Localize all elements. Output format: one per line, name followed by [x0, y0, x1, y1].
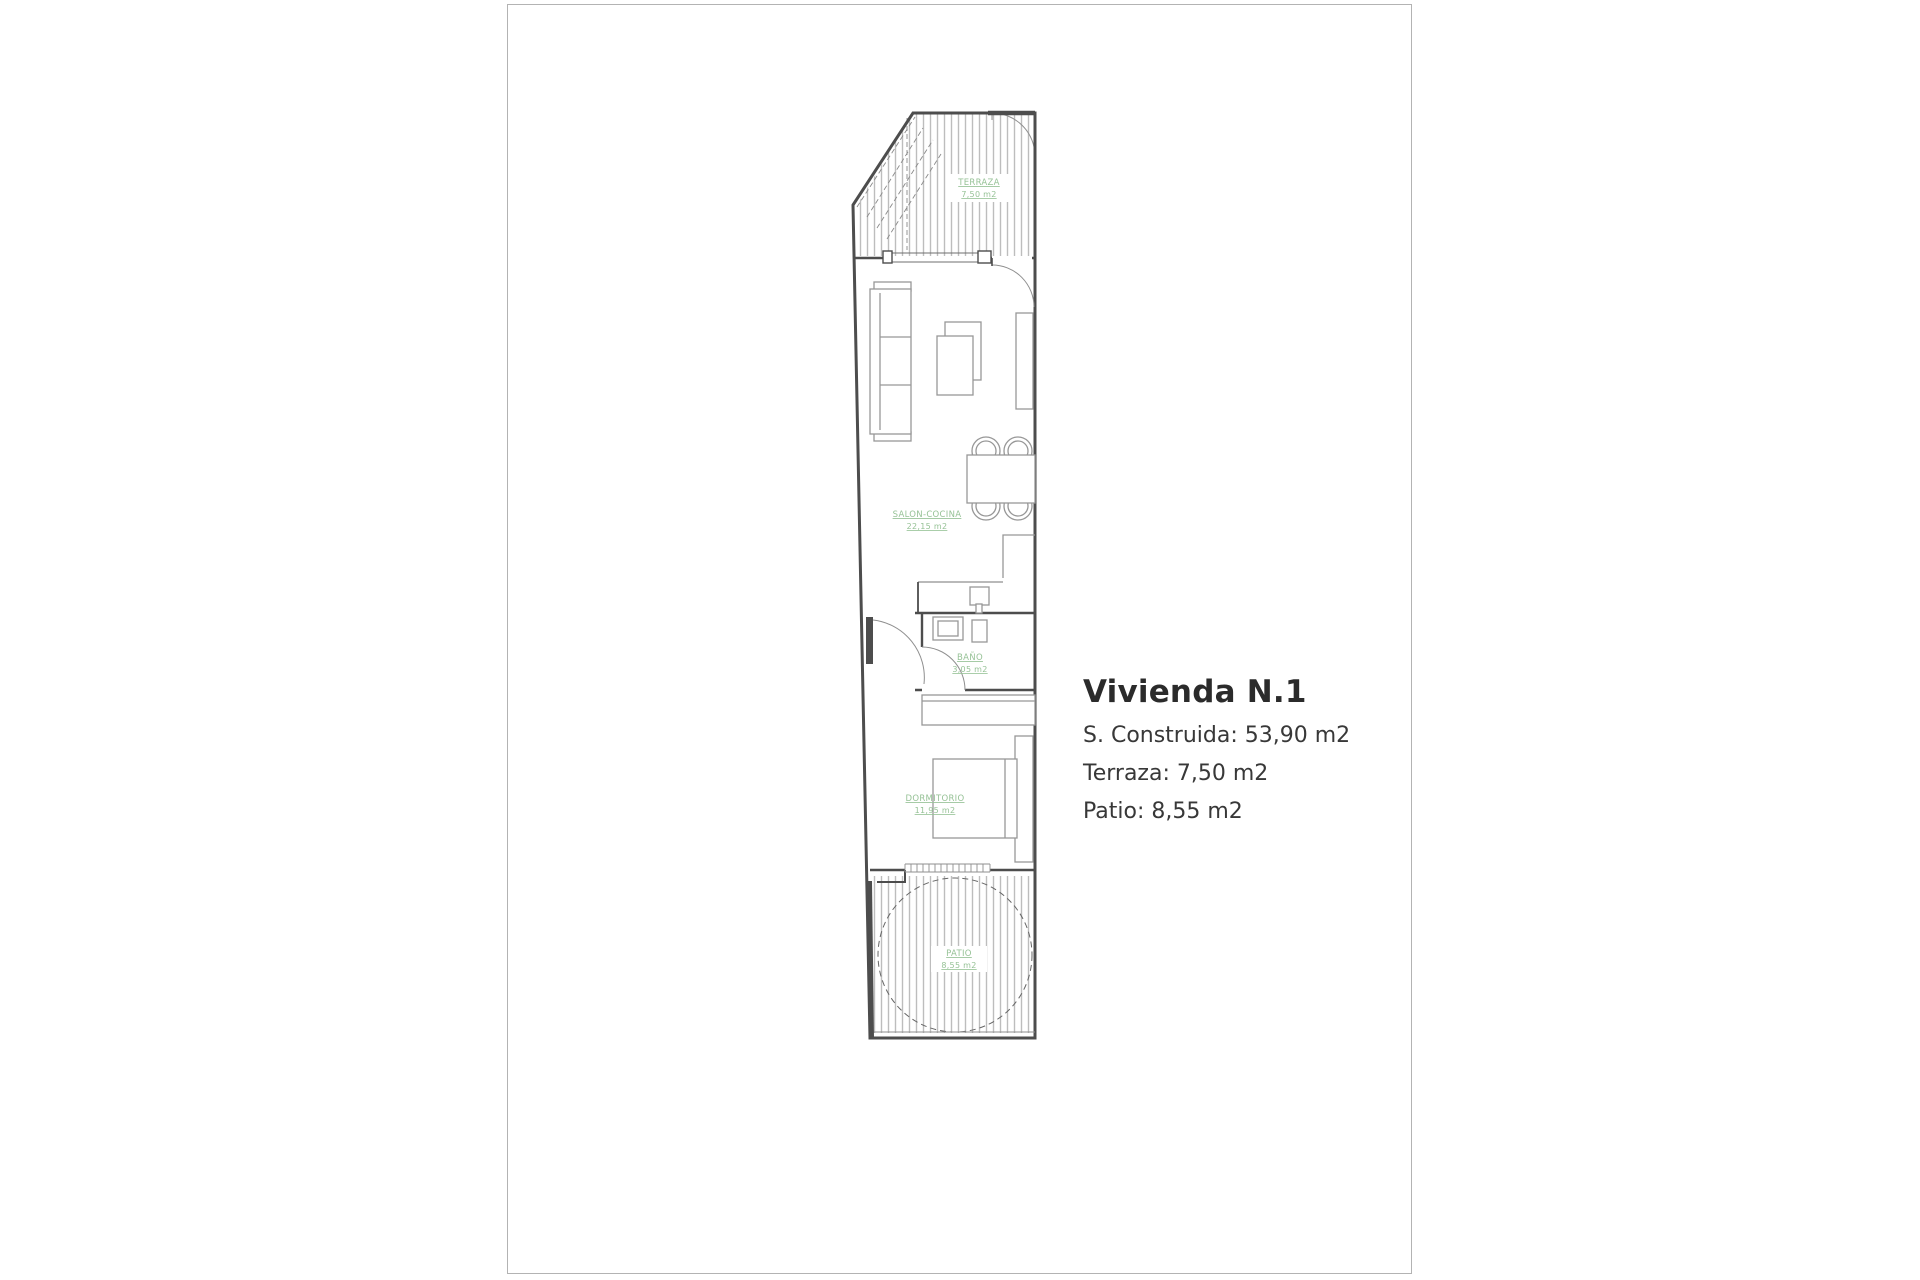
salon-label: SALON-COCINA — [893, 510, 962, 520]
patio-area-line: Patio: 8,55 m2 — [1083, 799, 1350, 824]
unit-title: Vivienda N.1 — [1083, 674, 1350, 710]
salon-area: 22,15 m2 — [907, 522, 948, 531]
dormitorio-label: DORMITORIO — [906, 794, 965, 804]
salon-entry-door-arc — [992, 265, 1034, 307]
unit-info-panel: Vivienda N.1 S. Construida: 53,90 m2 Ter… — [1083, 674, 1350, 824]
kitchen-sink — [970, 587, 989, 613]
bano-area: 3,05 m2 — [952, 665, 987, 674]
furniture — [870, 282, 1035, 862]
built-area-line: S. Construida: 53,90 m2 — [1083, 723, 1350, 748]
kitchen-counter — [1003, 535, 1035, 578]
coffee-table — [937, 322, 981, 395]
headboard — [1015, 736, 1033, 862]
terraza-label: TERRAZA — [957, 178, 1000, 188]
bedroom-window — [905, 864, 990, 872]
dining-set — [967, 437, 1035, 520]
sideboard — [1016, 313, 1033, 409]
patio-label: PATIO — [946, 949, 972, 959]
entry-door-arc — [873, 620, 924, 684]
terrace-area-line: Terraza: 7,50 m2 — [1083, 761, 1350, 786]
patio-left-wall — [870, 881, 872, 1038]
toilet — [972, 620, 987, 642]
patio-area: 8,55 m2 — [941, 961, 976, 970]
dining-table — [967, 455, 1035, 503]
terraza-area: 7,50 m2 — [961, 190, 996, 199]
entry-door-leaf — [866, 617, 873, 664]
dormitorio-area: 11,95 m2 — [915, 806, 956, 815]
bano-label: BAÑO — [957, 652, 983, 663]
wardrobe — [922, 695, 1035, 725]
washbasin — [933, 617, 963, 640]
sofa — [870, 282, 911, 441]
floor-plan: TERRAZA 7,50 m2 SALON-COCINA 22,15 m2 BA… — [845, 100, 1055, 1050]
